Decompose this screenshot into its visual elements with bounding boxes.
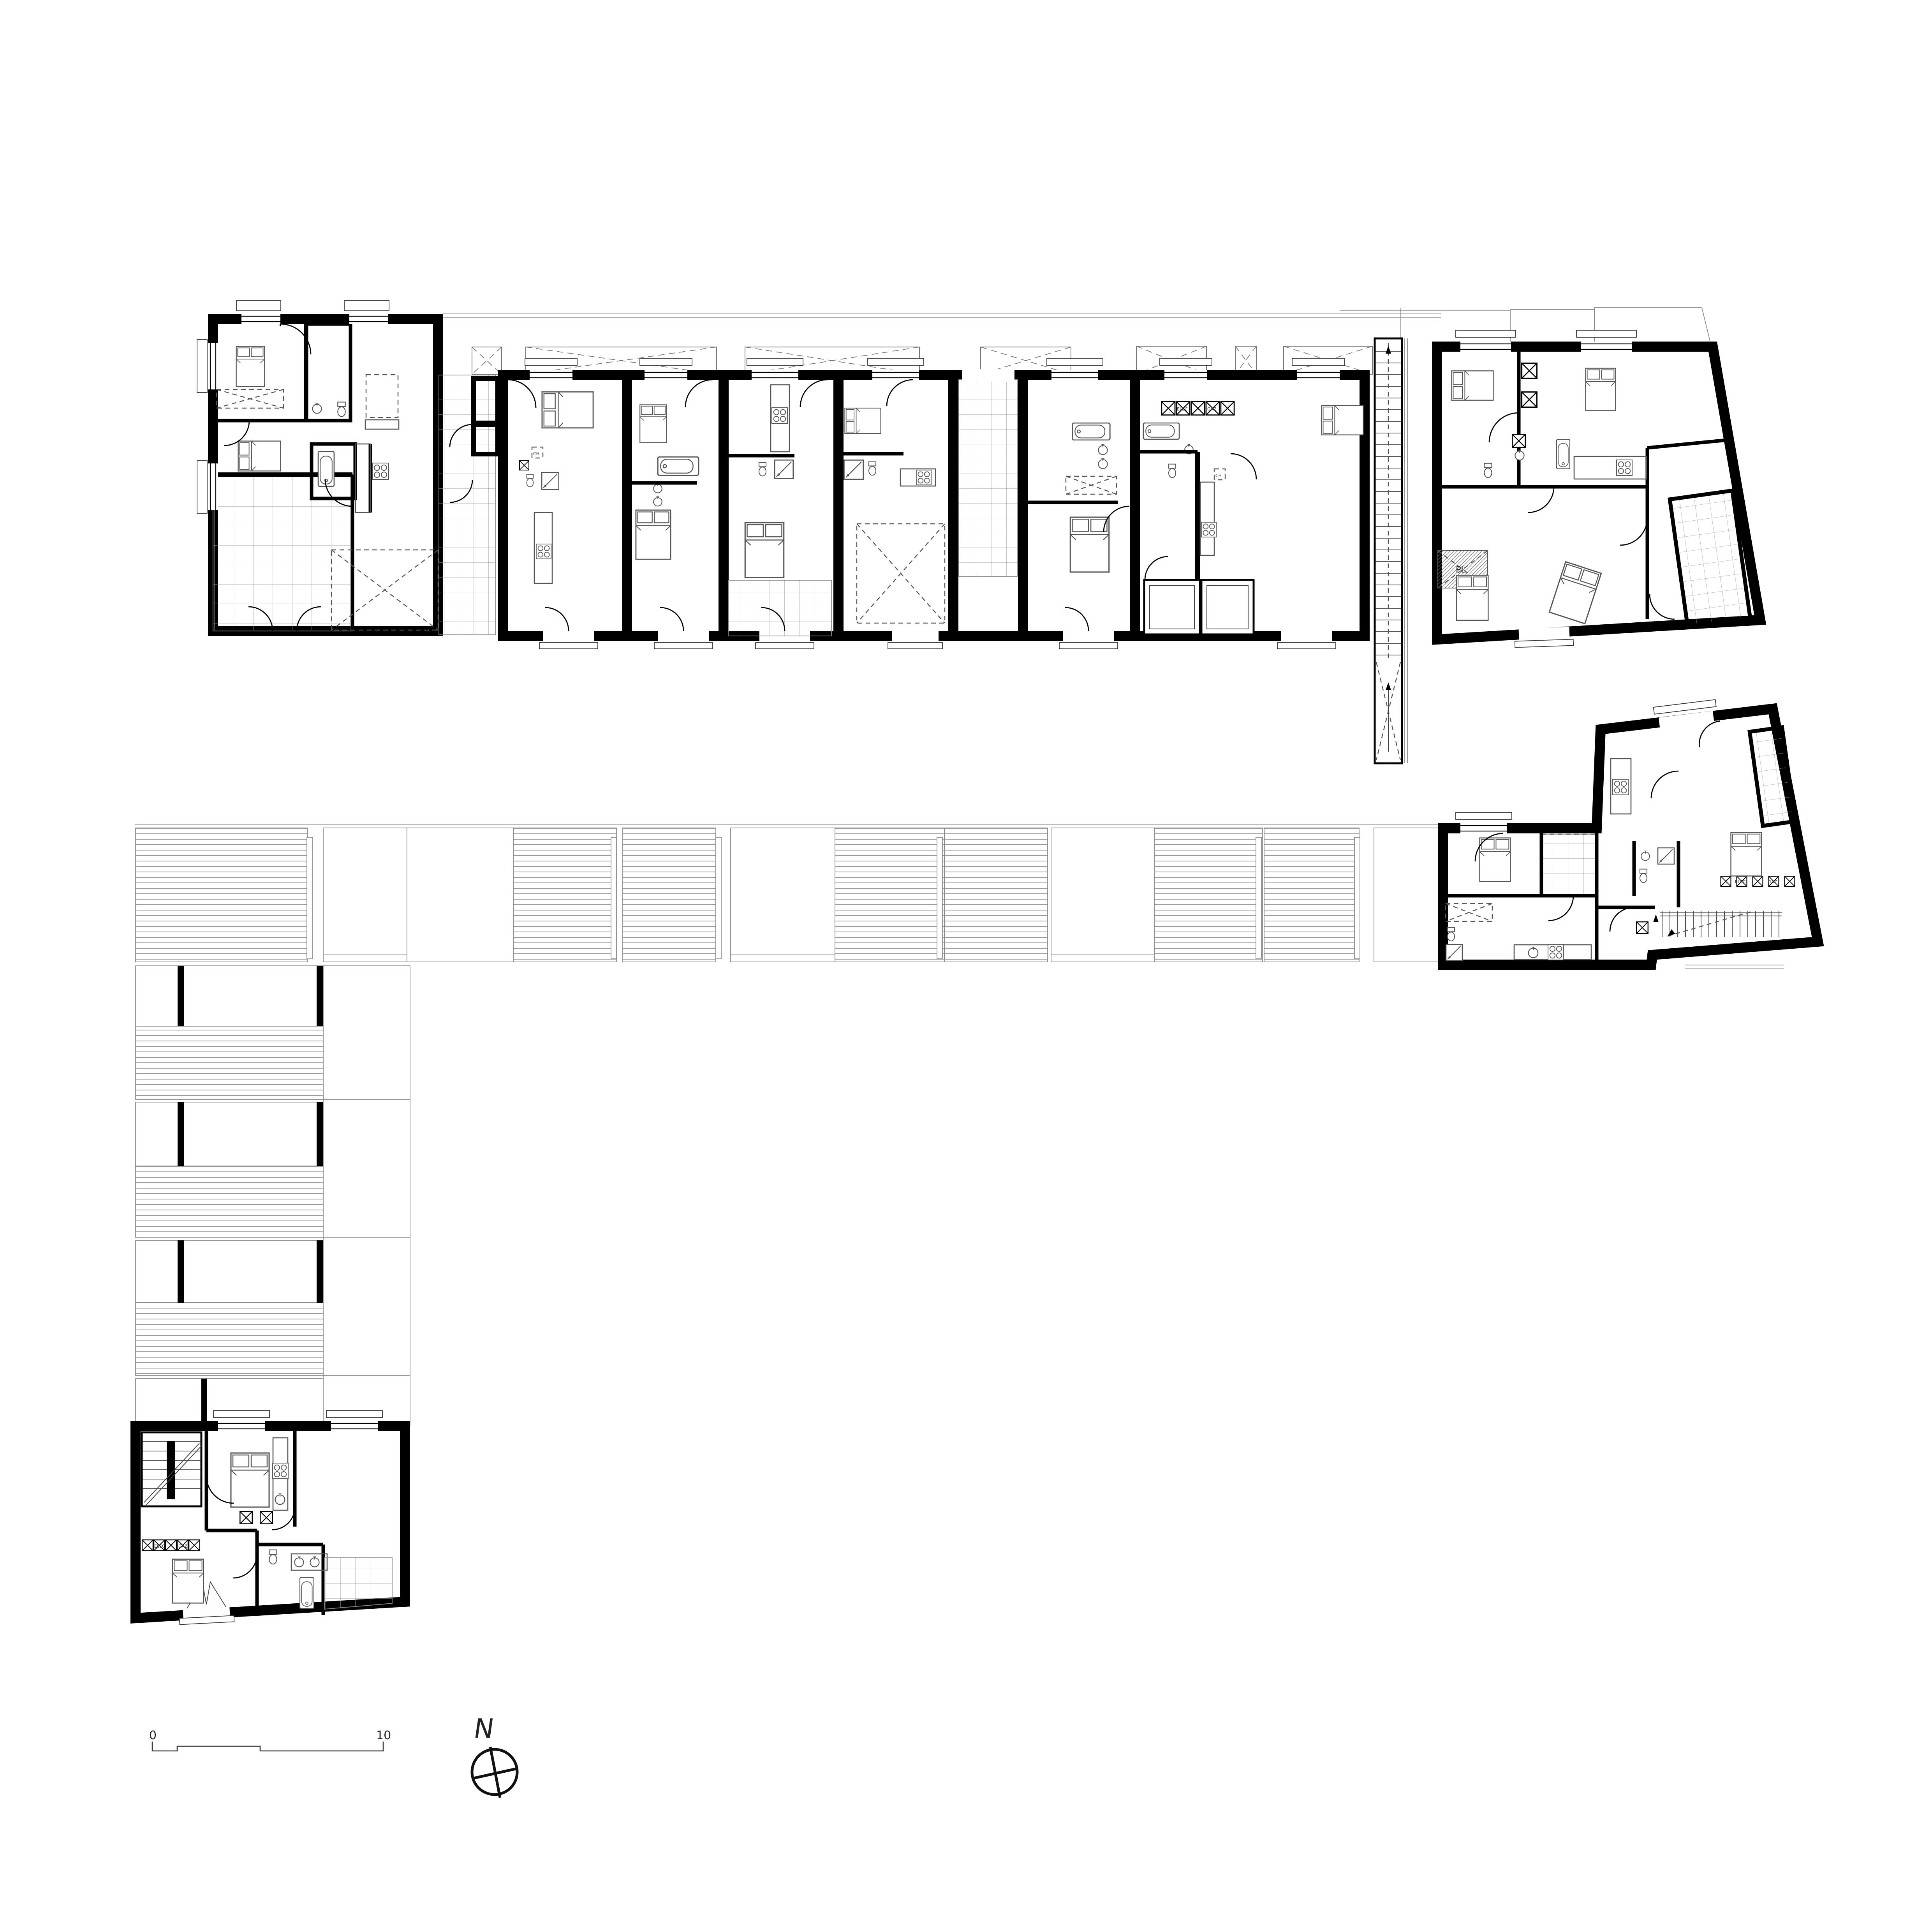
- meter-label: GAZ: [1768, 879, 1777, 884]
- unit-a1: [197, 301, 438, 631]
- bed-icon: [1480, 838, 1511, 882]
- glazed-bay: [1201, 580, 1254, 634]
- bed-icon: [1452, 371, 1493, 400]
- toilet-icon: [527, 474, 534, 487]
- deck-open-panel: [323, 828, 407, 962]
- bed-icon: [636, 510, 671, 559]
- deck-post: [1256, 837, 1261, 959]
- bathtub-icon: [300, 1578, 314, 1609]
- french-door: [539, 631, 598, 649]
- deck-panel: [136, 828, 308, 962]
- tiled-terrace: [324, 1558, 392, 1609]
- stove-icon: [372, 463, 389, 479]
- window: [747, 358, 803, 380]
- window: [640, 358, 692, 380]
- deck-post: [716, 837, 721, 959]
- deck-open-panel: [136, 1240, 323, 1303]
- window: [868, 358, 924, 380]
- bed-icon: [640, 405, 667, 442]
- exterior-stair: [1375, 338, 1407, 763]
- deck-post: [611, 837, 616, 959]
- stove-icon: [1548, 944, 1564, 960]
- french-door: [654, 631, 713, 649]
- bed-icon: [173, 1559, 204, 1603]
- deck-panel: [136, 1303, 323, 1375]
- deck-open-panel: [731, 828, 835, 962]
- tiled-terrace: [728, 580, 831, 636]
- closet: [1636, 922, 1648, 933]
- wardrobe: [1522, 392, 1537, 407]
- bed-icon: [542, 392, 593, 428]
- french-door: [888, 631, 942, 649]
- tiled-court: [959, 380, 1018, 576]
- bed-icon: [1070, 517, 1109, 572]
- stove-icon: [1613, 779, 1628, 795]
- unit-bottom-left: ELEC GAZ: [136, 1411, 405, 1625]
- deck-post: [307, 837, 312, 959]
- shower-icon: [775, 460, 793, 479]
- north-arrow: N: [472, 1714, 518, 1798]
- bed-icon: [231, 1453, 269, 1507]
- shower-icon: [844, 460, 863, 479]
- bathtub-icon: [658, 457, 699, 476]
- closet-label: PL: [1456, 565, 1466, 575]
- deck-panel: [944, 828, 1048, 962]
- deck-open-panel: [136, 966, 323, 1026]
- deck-panel: [136, 1166, 323, 1237]
- stairwell: [142, 1432, 202, 1506]
- stove-icon: [273, 1463, 288, 1479]
- scale-bar: 0 10: [149, 1729, 391, 1751]
- toilet-icon: [1169, 464, 1176, 478]
- floor-plan-drawing: CH: [0, 0, 1932, 1932]
- deck-panel: [1154, 828, 1263, 962]
- deck-open-panel: [1051, 828, 1154, 962]
- deck-post: [937, 837, 942, 959]
- bathtub-icon: [318, 451, 334, 486]
- bed-icon: [1456, 575, 1488, 620]
- deck-open-panel: [1374, 828, 1443, 962]
- meter-label: ELEC: [1177, 407, 1188, 412]
- toilet-icon: [1448, 928, 1455, 941]
- window: [1456, 330, 1516, 352]
- canopy-lines: [443, 308, 1711, 347]
- scale-end-label: 10: [376, 1729, 391, 1742]
- deck-panel: [623, 828, 716, 962]
- deck-open-panel: [136, 1379, 323, 1426]
- shower-icon: [1446, 944, 1462, 961]
- window: [1576, 330, 1636, 352]
- deck-open-column: [323, 966, 410, 1425]
- deck-panel: [136, 1026, 323, 1099]
- toilet-icon: [338, 402, 345, 416]
- stove-icon: [1617, 460, 1632, 476]
- shower-icon: [1658, 848, 1674, 864]
- unit-middle-right: ELEC GAZ: [1443, 700, 1818, 968]
- deck-band-horizontal: [135, 825, 1443, 962]
- meter-label: ELEC: [154, 1544, 165, 1549]
- wardrobe: [1522, 363, 1537, 379]
- french-door: [1059, 631, 1118, 649]
- shower-icon: [542, 472, 559, 490]
- chute-label: CH: [1215, 473, 1222, 478]
- toilet-icon: [1484, 463, 1492, 478]
- entry-passage: [439, 375, 498, 635]
- toilet-icon: [869, 462, 876, 476]
- bed-icon: [1322, 405, 1363, 435]
- toilet-icon: [759, 463, 766, 476]
- window: [525, 358, 577, 380]
- meter-boxes: ELEC GAZ: [1162, 402, 1234, 415]
- deck-band-vertical: [136, 966, 410, 1426]
- bed-icon: [238, 441, 281, 471]
- tiled-passage: [439, 375, 495, 635]
- stove-icon: [1201, 522, 1216, 537]
- bed-icon: [1731, 833, 1762, 876]
- bathtub-icon: [1073, 423, 1110, 440]
- french-door: [1277, 631, 1336, 649]
- deck-open-panel: [136, 1102, 323, 1166]
- unit-top-right: PL: [1437, 330, 1760, 648]
- meter-label: GAZ: [178, 1544, 188, 1549]
- stove-icon: [536, 544, 551, 559]
- scale-start-label: 0: [149, 1729, 157, 1742]
- awning: [472, 347, 502, 374]
- washer-icon: [520, 461, 529, 470]
- bed-icon: [745, 523, 784, 578]
- stove-icon: [916, 470, 931, 485]
- chute-label: CH: [533, 451, 539, 456]
- bed-icon: [845, 408, 881, 433]
- meter-label: ELEC: [1735, 879, 1746, 884]
- strip-building: CH: [498, 358, 1370, 649]
- bathtub-icon: [1143, 423, 1179, 439]
- french-door: [1515, 627, 1573, 648]
- north-label: N: [472, 1714, 496, 1744]
- bed-icon: [236, 347, 265, 387]
- washer-icon: [1512, 434, 1525, 447]
- toilet-icon: [269, 1550, 277, 1564]
- window: [1160, 358, 1212, 380]
- meter-boxes: ELEC GAZ: [142, 1540, 200, 1551]
- stove-icon: [772, 408, 787, 423]
- meter-label: GAZ: [1207, 407, 1217, 412]
- glazed-bay: [1144, 580, 1200, 634]
- toilet-icon: [1640, 869, 1647, 883]
- tiled-patio: [1541, 834, 1597, 896]
- bathtub-icon: [1557, 439, 1570, 468]
- deck-panel: [1264, 828, 1359, 962]
- deck-panel: [835, 828, 944, 962]
- deck-post: [1354, 837, 1360, 959]
- bed-icon: [1586, 368, 1616, 411]
- deck-panel: [513, 828, 616, 962]
- window: [1456, 812, 1512, 833]
- deck-open-panel: [407, 828, 513, 962]
